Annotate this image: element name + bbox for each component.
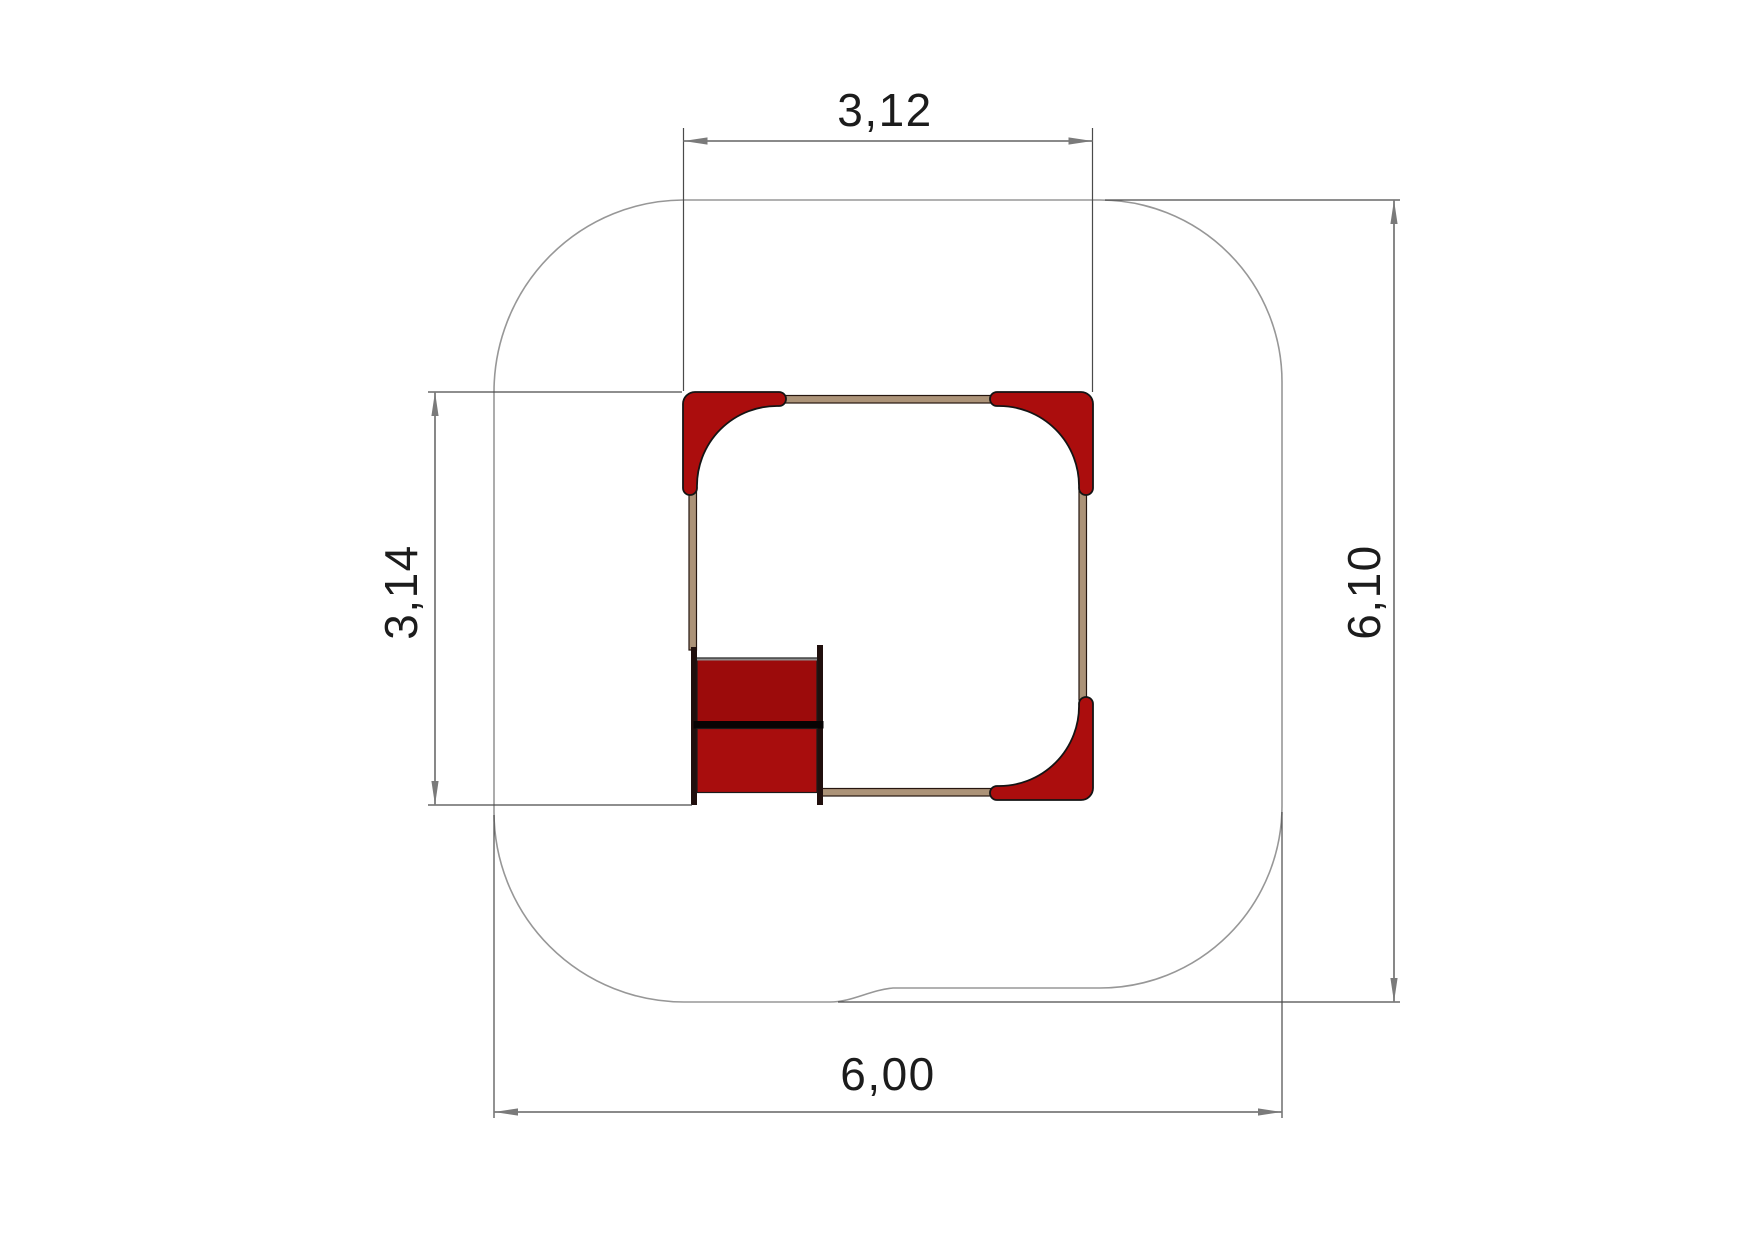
play-panel-box — [691, 645, 824, 805]
corner-seat-top-left — [683, 392, 786, 495]
corner-seat-bottom-right — [990, 697, 1093, 800]
dimension-label-structure-depth: 3,14 — [375, 544, 427, 640]
corner-seat-top-right — [990, 392, 1093, 495]
dimension-label-safety-zone-height: 6,10 — [1338, 544, 1390, 640]
panel-upper — [697, 658, 817, 722]
safety-zone-outline — [494, 200, 1282, 1002]
dimension-structure-depth: 3,14 — [375, 392, 692, 805]
frame-beam-bottom — [820, 789, 992, 797]
frame-beam-top — [780, 396, 992, 404]
safety-zone — [494, 200, 1282, 1002]
plan-drawing: 3,12 3,14 6,10 6,00 — [0, 0, 1754, 1240]
panel-divider — [694, 721, 824, 729]
panel-lower — [697, 729, 817, 793]
frame-beam-right — [1079, 490, 1087, 700]
dimension-safety-zone-height: 6,10 — [838, 200, 1400, 1002]
dimension-safety-zone-width: 6,00 — [494, 812, 1282, 1118]
dimension-label-structure-width: 3,12 — [837, 84, 933, 136]
play-structure — [683, 392, 1093, 805]
drawing-canvas: 3,12 3,14 6,10 6,00 — [0, 0, 1754, 1240]
frame-beam-left — [689, 490, 697, 650]
dimension-label-safety-zone-width: 6,00 — [840, 1048, 936, 1100]
dimension-structure-width: 3,12 — [684, 84, 1093, 392]
